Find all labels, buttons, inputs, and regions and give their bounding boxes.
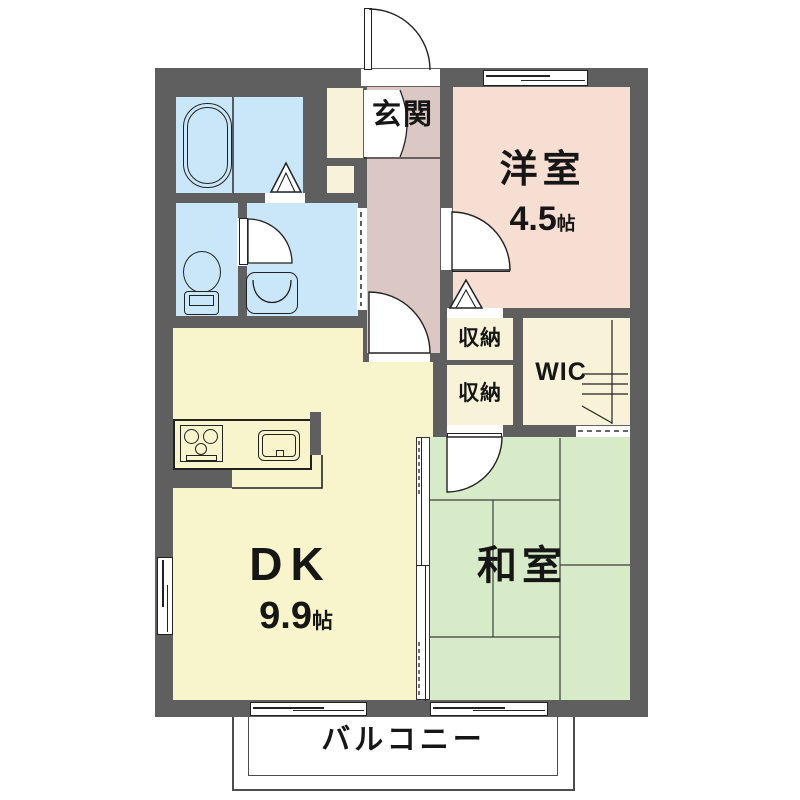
western-door-leaf: [452, 264, 510, 272]
storage-lower-label: 収納: [447, 383, 513, 404]
sink-drain: [276, 450, 284, 457]
sliding-window-icon: [430, 702, 548, 716]
size-value: 9.9: [259, 595, 312, 637]
western-door-opening: [441, 208, 452, 270]
swing-door-icon: [369, 9, 430, 70]
western-room-size: 4.5帖: [455, 202, 630, 236]
storage-folding-opening: [447, 308, 503, 318]
room-western: [453, 87, 630, 308]
entrance-opening: [361, 69, 440, 86]
washitsu-label: 和室: [430, 546, 614, 586]
stove-burner: [184, 429, 199, 444]
balcony-label: バルコニー: [232, 726, 575, 755]
wic-label: WIC: [523, 360, 599, 385]
toilet-door-leaf: [239, 218, 248, 265]
toilet-tank-lid: [189, 295, 214, 306]
size-value: 4.5: [510, 200, 557, 238]
washbasin-icon: [246, 272, 298, 314]
shoe-cabinet-lower: [327, 166, 354, 193]
sliding-window-icon: [157, 557, 173, 635]
floor-plan: 玄関 洋室 4.5帖 収納 収納 WIC DK 9.9帖 和室 バルコニー: [0, 0, 800, 800]
storage-upper-label: 収納: [447, 328, 513, 349]
dk-size: 9.9帖: [203, 597, 389, 635]
stove-burner: [203, 429, 218, 444]
entrance-door-leaf: [364, 8, 372, 70]
room-dk: [173, 328, 363, 700]
toilet-icon: [183, 251, 221, 293]
size-unit: 帖: [557, 213, 576, 234]
bath-folding-opening: [265, 193, 305, 203]
stove-tray: [186, 455, 217, 461]
sliding-window-icon: [250, 702, 367, 716]
dk-door-opening: [369, 353, 430, 362]
dk-label: DK: [203, 541, 378, 587]
wall-stub-dk: [158, 470, 232, 488]
sliding-window-icon: [483, 70, 588, 86]
wic-opening: [576, 426, 630, 437]
sliding-door-partition: [416, 437, 430, 700]
washitsu-door-leaf: [447, 433, 502, 441]
bathtub-inner: [187, 107, 228, 184]
stove-burner: [195, 443, 207, 455]
shoe-cabinet: [327, 88, 363, 158]
wall-stub-counter: [310, 412, 321, 455]
washroom-opening: [357, 208, 367, 310]
size-unit: 帖: [312, 610, 333, 633]
western-room-label: 洋室: [455, 151, 630, 189]
genkan-label: 玄関: [365, 101, 441, 130]
